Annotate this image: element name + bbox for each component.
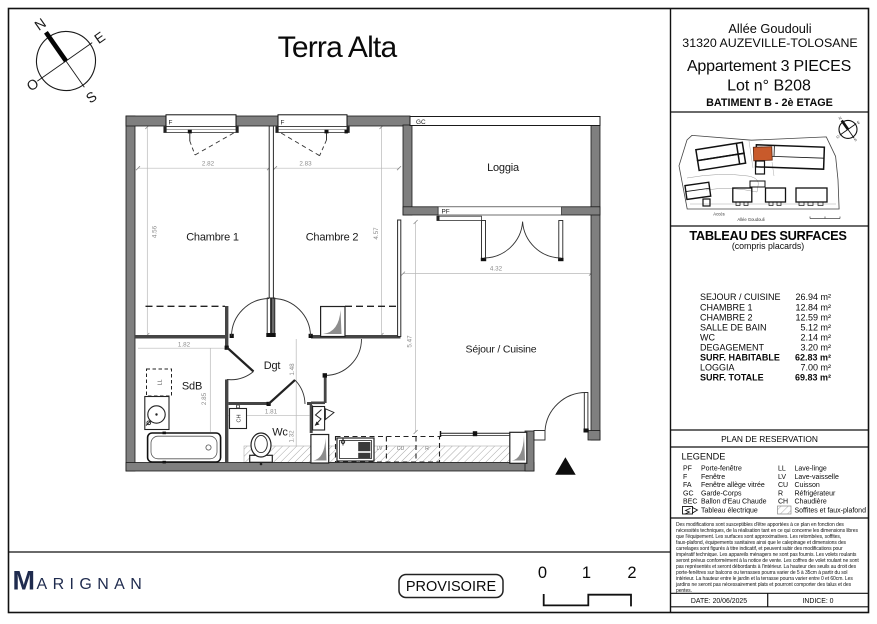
svg-text:1.32: 1.32 [289,430,296,443]
svg-text:5.12 m²: 5.12 m² [800,322,831,332]
svg-text:Réfrigérateur: Réfrigérateur [795,490,837,497]
svg-text:CHAMBRE 1: CHAMBRE 1 [700,302,753,312]
svg-text:Dgt: Dgt [264,360,281,372]
svg-text:0: 0 [538,564,547,582]
svg-text:Lave-vaisselle: Lave-vaisselle [795,474,839,481]
svg-text:LL: LL [158,380,164,386]
svg-text:PF: PF [442,208,450,215]
svg-text:DEGAGEMENT: DEGAGEMENT [700,342,765,352]
svg-text:BEC: BEC [683,499,697,506]
svg-text:2: 2 [627,564,636,582]
svg-text:Allée Goudouli: Allée Goudouli [737,217,764,222]
svg-text:R: R [778,490,783,497]
svg-text:GC: GC [416,119,426,126]
svg-text:31320 AUZEVILLE-TOLOSANE: 31320 AUZEVILLE-TOLOSANE [682,36,857,50]
svg-text:Lave-linge: Lave-linge [795,466,827,473]
svg-text:SdB: SdB [182,381,202,393]
svg-text:Chambre 1: Chambre 1 [186,232,239,244]
svg-text:DATE: 20/06/2025: DATE: 20/06/2025 [691,598,747,605]
svg-text:Ballon d'Eau Chaude: Ballon d'Eau Chaude [701,499,767,506]
svg-text:INDICE: 0: INDICE: 0 [802,598,833,605]
svg-text:PLAN DE RESERVATION: PLAN DE RESERVATION [721,434,818,444]
svg-text:pentes.: pentes. [676,588,692,594]
svg-text:F: F [281,120,285,127]
svg-text:LV: LV [778,474,786,481]
svg-text:12.59 m²: 12.59 m² [795,312,831,322]
svg-text:Fenêtre: Fenêtre [701,474,725,481]
svg-text:Porte-fenêtre: Porte-fenêtre [701,466,742,473]
svg-text:SURF. HABITABLE: SURF. HABITABLE [700,353,780,363]
svg-text:LV: LV [377,446,383,452]
svg-text:M: M [13,566,36,596]
svg-text:F: F [683,474,687,481]
svg-text:2.83: 2.83 [299,161,312,168]
svg-text:F: F [169,120,173,127]
svg-text:69.83 m²: 69.83 m² [795,373,831,383]
svg-text:Tableau électrique: Tableau électrique [701,508,758,515]
svg-text:2.85: 2.85 [201,392,208,405]
svg-text:3.20 m²: 3.20 m² [800,342,831,352]
svg-text:4.56: 4.56 [152,225,159,238]
svg-text:Appartement 3 PIECES: Appartement 3 PIECES [687,58,851,75]
svg-text:2.14 m²: 2.14 m² [800,332,831,342]
svg-text:GC: GC [683,490,694,497]
svg-text:12.84 m²: 12.84 m² [795,302,831,312]
svg-text:Séjour / Cuisine: Séjour / Cuisine [466,344,537,356]
svg-text:1.48: 1.48 [289,363,296,376]
svg-text:CU: CU [778,482,788,489]
svg-text:SEJOUR / CUISINE: SEJOUR / CUISINE [700,292,781,302]
svg-text:CH: CH [236,414,242,422]
svg-text:R: R [425,446,429,452]
svg-text:26.94 m²: 26.94 m² [795,292,831,302]
svg-text:PF: PF [683,466,692,473]
svg-text:1.82: 1.82 [178,341,191,348]
svg-text:5.47: 5.47 [407,335,414,348]
svg-text:PROVISOIRE: PROVISOIRE [406,579,497,595]
svg-text:(compris placards): (compris placards) [732,241,804,251]
svg-text:LEGENDE: LEGENDE [682,452,726,462]
svg-text:jardins ne seront pas nécessai: jardins ne seront pas nécessairement pla… [675,582,852,588]
svg-text:ARIGNAN: ARIGNAN [37,576,148,593]
svg-text:BATIMENT B - 2è ETAGE: BATIMENT B - 2è ETAGE [706,97,833,109]
svg-text:LOGGIA: LOGGIA [700,363,735,373]
svg-text:FA: FA [683,482,692,489]
svg-text:4.32: 4.32 [490,266,503,273]
svg-text:Fenêtre allège vitrée: Fenêtre allège vitrée [701,482,765,489]
svg-text:Soffites et faux-plafond: Soffites et faux-plafond [795,508,867,515]
svg-text:Chambre 2: Chambre 2 [306,232,359,244]
svg-text:SALLE DE BAIN: SALLE DE BAIN [700,322,767,332]
svg-text:Terra Alta: Terra Alta [278,31,398,64]
svg-text:LL: LL [778,466,786,473]
svg-text:Lot n° B208: Lot n° B208 [727,78,811,95]
svg-text:CU: CU [397,446,405,452]
svg-text:62.83 m²: 62.83 m² [795,353,831,363]
svg-text:Loggia: Loggia [487,162,520,174]
svg-text:SURF. TOTALE: SURF. TOTALE [700,373,764,383]
svg-text:4.57: 4.57 [373,227,380,240]
svg-text:CH: CH [778,499,788,506]
svg-text:1: 1 [582,564,591,582]
svg-text:7.00 m²: 7.00 m² [800,363,831,373]
svg-text:2.82: 2.82 [202,161,215,168]
svg-text:Cuisson: Cuisson [795,482,820,489]
svg-text:Garde-Corps: Garde-Corps [701,490,742,497]
svg-text:CHAMBRE 2: CHAMBRE 2 [700,312,753,322]
svg-text:Chaudière: Chaudière [795,499,827,506]
svg-text:WC: WC [700,332,715,342]
svg-text:Allée Goudouli: Allée Goudouli [728,21,811,36]
svg-text:Accès: Accès [713,212,724,217]
svg-text:Wc: Wc [272,427,288,439]
svg-text:1.81: 1.81 [265,408,278,415]
